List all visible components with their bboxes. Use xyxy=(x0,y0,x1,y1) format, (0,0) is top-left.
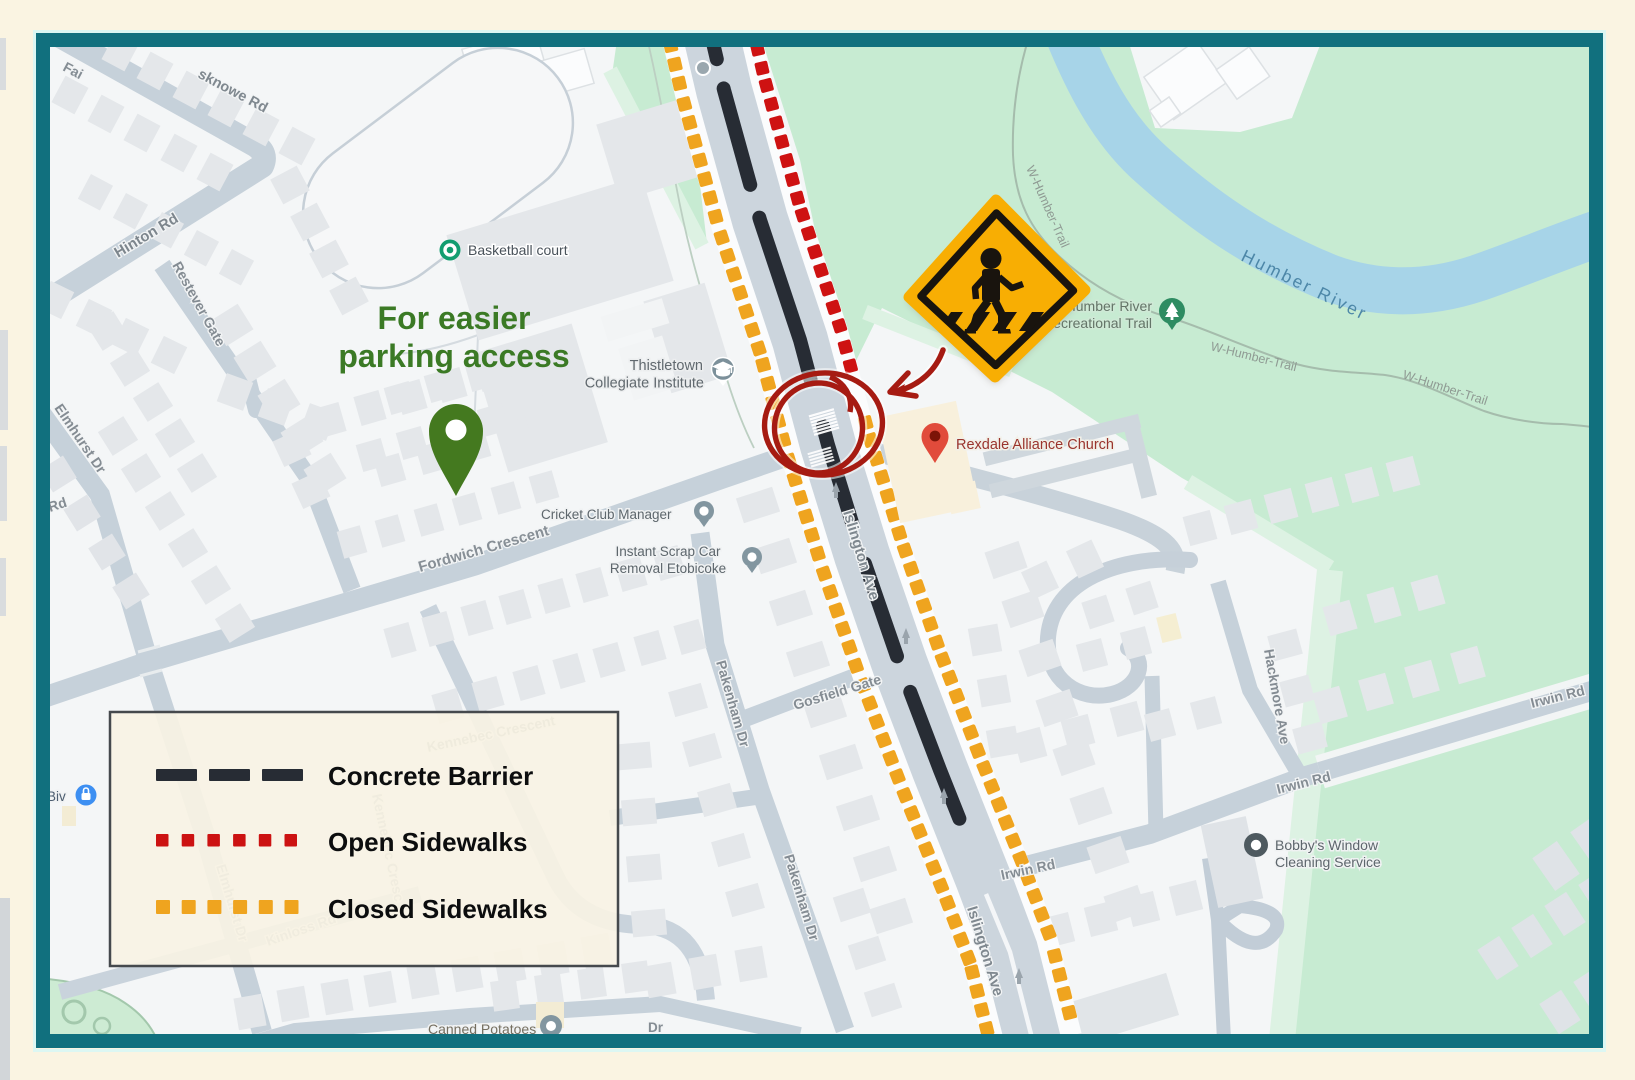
svg-text:For easier: For easier xyxy=(378,300,531,336)
svg-text:Instant Scrap Car: Instant Scrap Car xyxy=(615,544,721,559)
svg-text:Thistletown: Thistletown xyxy=(630,358,703,374)
svg-text:Cleaning Service: Cleaning Service xyxy=(1275,854,1381,870)
svg-text:Closed Sidewalks: Closed Sidewalks xyxy=(328,894,548,924)
svg-text:Removal Etobicoke: Removal Etobicoke xyxy=(610,561,726,576)
svg-text:Bobby's Window: Bobby's Window xyxy=(1275,837,1379,853)
svg-text:Basketball court: Basketball court xyxy=(468,242,568,258)
svg-text:Open Sidewalks: Open Sidewalks xyxy=(328,827,527,857)
svg-text:Rexdale Alliance Church: Rexdale Alliance Church xyxy=(956,437,1114,453)
svg-text:Dr: Dr xyxy=(648,1020,664,1035)
svg-text:Collegiate Institute: Collegiate Institute xyxy=(585,376,704,392)
svg-text:parking access: parking access xyxy=(338,338,569,374)
svg-text:Concrete Barrier: Concrete Barrier xyxy=(328,761,533,791)
svg-text:Cricket Club Manager: Cricket Club Manager xyxy=(541,507,672,522)
